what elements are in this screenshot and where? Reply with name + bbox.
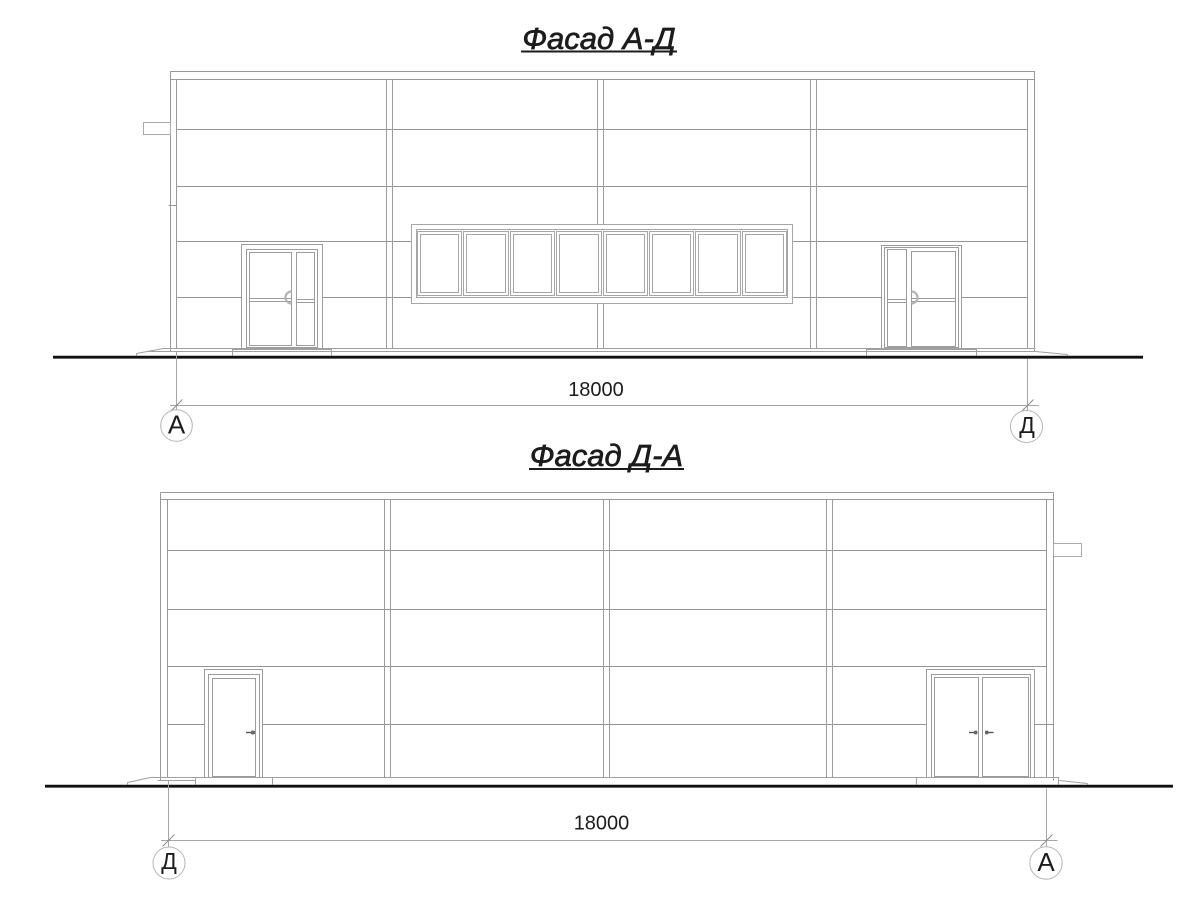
svg-text:18000: 18000 <box>574 813 630 835</box>
svg-text:Д: Д <box>161 848 177 874</box>
svg-text:18000: 18000 <box>568 379 624 401</box>
svg-text:А: А <box>168 410 186 440</box>
svg-text:А: А <box>1037 847 1055 877</box>
svg-text:Фасад Д-А: Фасад Д-А <box>530 438 683 473</box>
svg-text:Д: Д <box>1019 412 1035 438</box>
